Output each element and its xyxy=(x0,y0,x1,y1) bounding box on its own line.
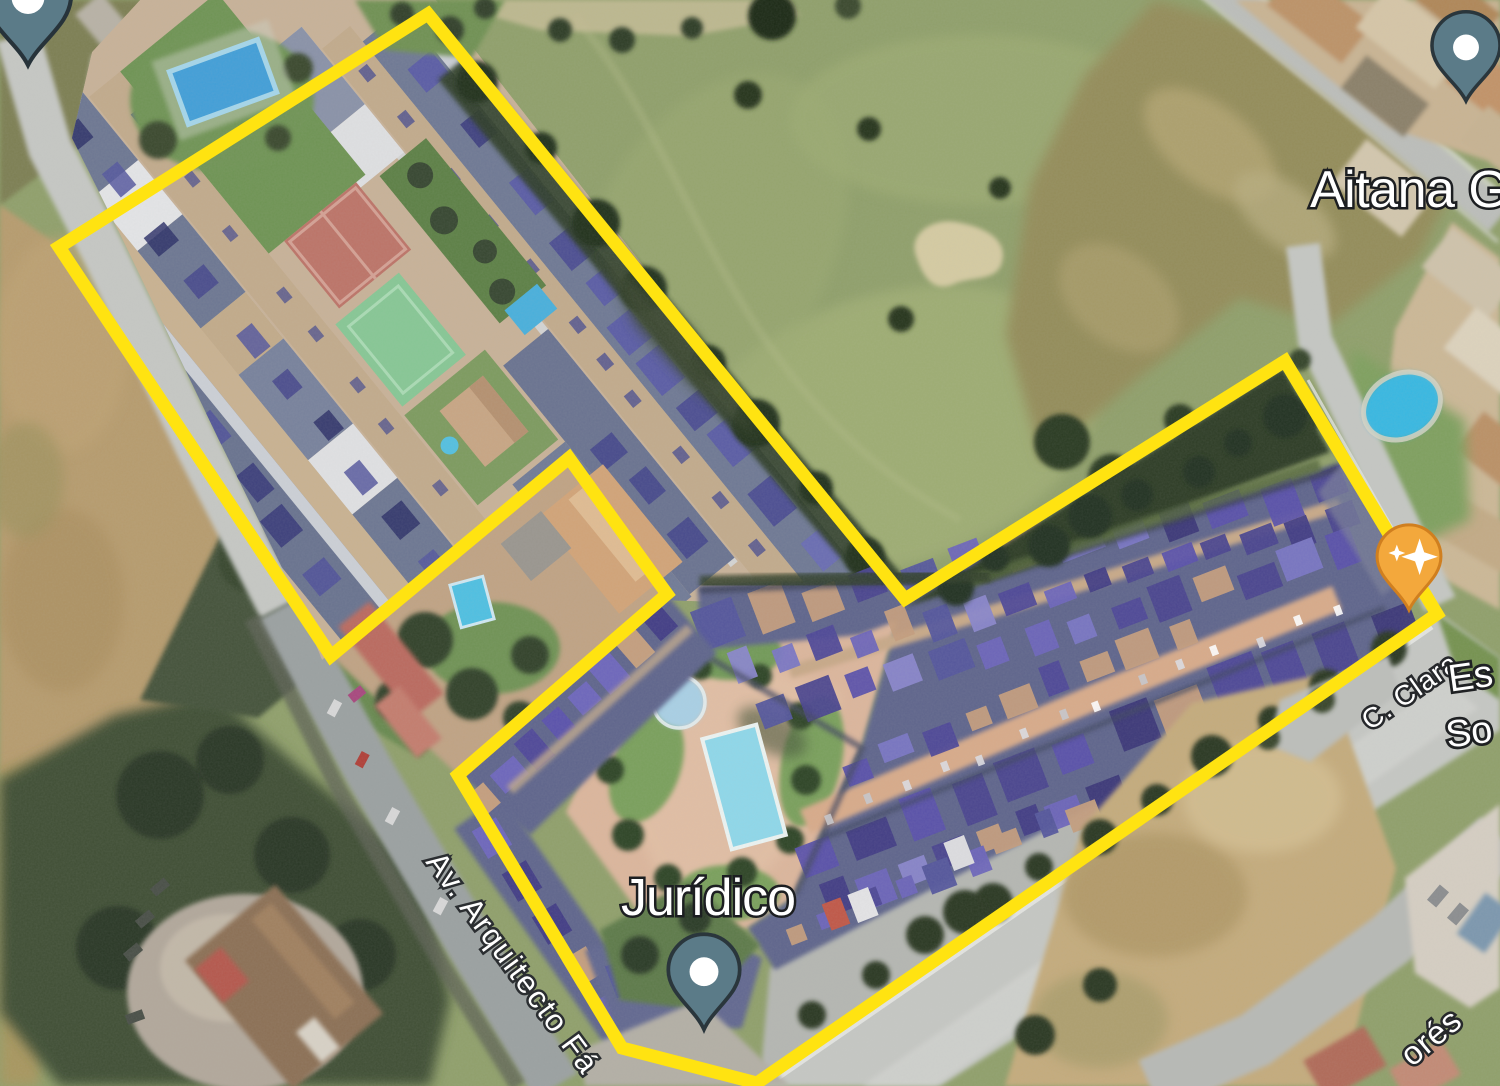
svg-text:Es: Es xyxy=(1446,653,1496,701)
svg-text:So: So xyxy=(1443,709,1495,757)
svg-text:Jurídico: Jurídico xyxy=(621,869,795,927)
svg-text:Aitana G: Aitana G xyxy=(1310,161,1500,219)
